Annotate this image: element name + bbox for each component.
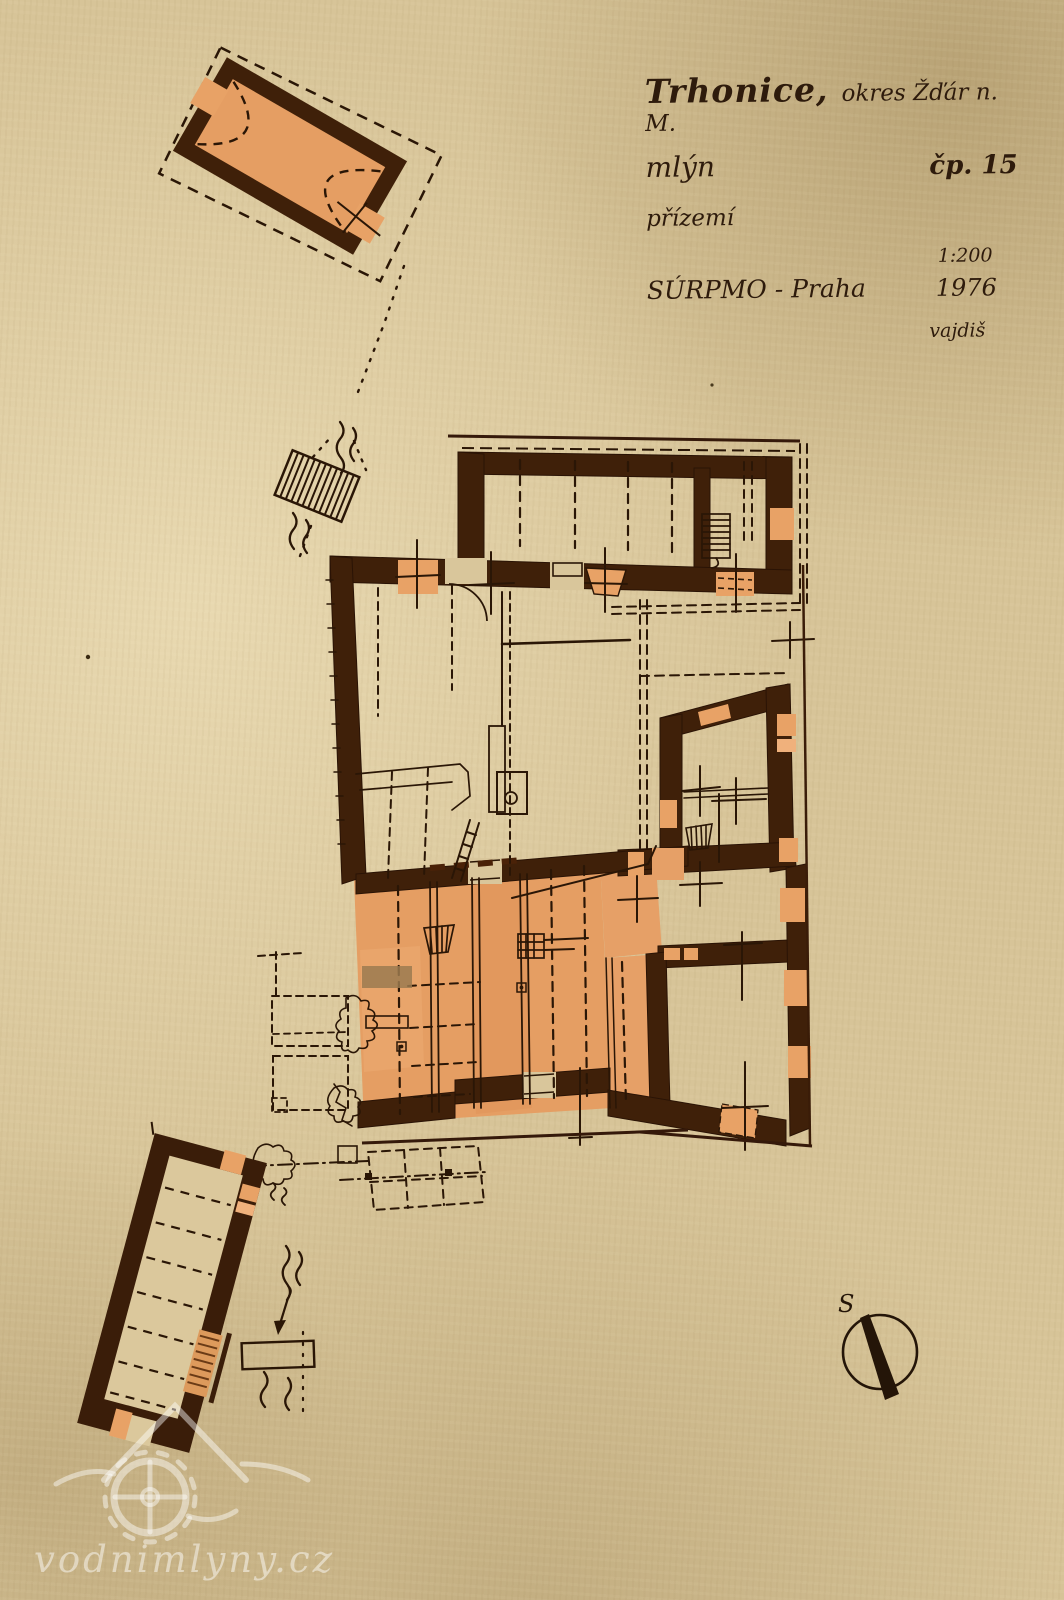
eave-dashed [462, 448, 795, 451]
tailrace-stream [242, 1246, 315, 1420]
water-wave [283, 1246, 290, 1300]
house-number: čp. 15 [929, 150, 1018, 181]
wheel-pit-area [252, 952, 377, 1205]
stream-bank-dotted [358, 266, 404, 392]
water-wave [337, 422, 344, 473]
title-line-location: Trhonice, okres Žďár n. M. [645, 68, 1018, 137]
settlement-name: Trhonice, [645, 70, 829, 111]
water-wave [296, 1252, 302, 1285]
door-south [719, 1104, 758, 1138]
door-gap [445, 558, 487, 584]
building-type: mlýn [645, 150, 715, 184]
window [777, 739, 796, 752]
stream-and-bridge [275, 422, 366, 556]
water-wave [290, 513, 297, 549]
window-east [784, 970, 809, 1006]
paper-fleck [86, 655, 90, 659]
scanned-floorplan-page: S vodnimlyny.cz Trhonice, okres Žďár n. … [0, 0, 1064, 1600]
door-gap [550, 560, 584, 590]
window [777, 714, 796, 736]
survey-year: 1976 [936, 273, 1019, 302]
compass-north-label: S [838, 1290, 854, 1318]
stream-bank-dotted [354, 441, 366, 470]
wall-rightwing-west [660, 714, 682, 866]
outbuilding-plan [151, 33, 450, 296]
window-wing-east [770, 508, 794, 540]
wall-north [458, 452, 792, 479]
wall-strip-room-east [646, 952, 670, 1108]
flume-grid [340, 1146, 486, 1210]
title-line-type: mlýn čp. 15 [645, 147, 1017, 184]
institution-name: SÚRPMO - Praha [647, 274, 866, 305]
stream-bank-dotted [313, 437, 331, 457]
mill-machine-base [497, 772, 527, 814]
stone-outline [328, 1086, 361, 1122]
window-east [788, 1046, 811, 1078]
scale-label: 1:200 [646, 244, 1018, 270]
door-swing-arc [449, 584, 487, 621]
terrain-line [362, 1130, 688, 1143]
author-signature: vajdiš [647, 319, 1019, 345]
floor-label: přízemí [646, 202, 1018, 232]
flow-arrow [280, 1298, 288, 1324]
wall-west [330, 556, 366, 884]
niche [660, 800, 677, 828]
flow-arrowhead [274, 1320, 286, 1335]
watermark-text: vodnimlyny.cz [34, 1538, 335, 1581]
timber-beam [362, 966, 412, 988]
gable-line [448, 436, 800, 441]
staircase [356, 764, 470, 878]
title-line-institution: SÚRPMO - Praha 1976 [647, 272, 1019, 305]
window [779, 838, 798, 862]
water-wave [261, 1372, 268, 1407]
water-wave [285, 1378, 291, 1410]
footbridge-symbol [275, 450, 360, 521]
water-wave [350, 428, 356, 461]
window-east [780, 888, 805, 922]
door-gap [628, 852, 644, 876]
north-compass: S [838, 1290, 917, 1400]
door-gap [652, 848, 684, 880]
title-block: Trhonice, okres Žďár n. M. mlýn čp. 15 p… [645, 68, 1020, 345]
paper-fleck [710, 383, 713, 386]
